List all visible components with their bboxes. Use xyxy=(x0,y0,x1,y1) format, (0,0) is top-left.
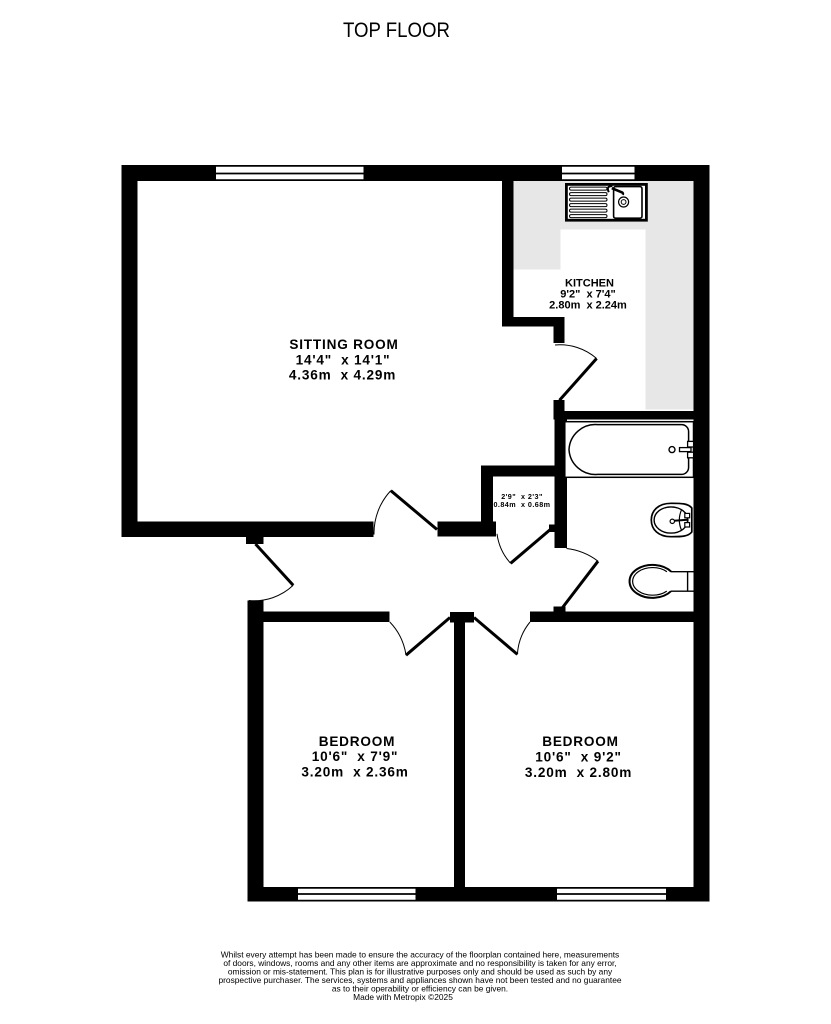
svg-text:3.20m x 2.80m: 3.20m x 2.80m xyxy=(525,765,632,780)
svg-text:0.84m x 0.68m: 0.84m x 0.68m xyxy=(493,500,550,509)
svg-text:SITTING ROOM: SITTING ROOM xyxy=(289,337,398,352)
svg-text:2.80m x 2.24m: 2.80m x 2.24m xyxy=(549,299,627,311)
svg-text:10'6" x 9'2": 10'6" x 9'2" xyxy=(535,749,621,764)
svg-text:14'4" x 14'1": 14'4" x 14'1" xyxy=(296,352,391,367)
svg-text:BEDROOM: BEDROOM xyxy=(319,734,396,749)
svg-text:Made with Metropix ©2025: Made with Metropix ©2025 xyxy=(353,992,453,1002)
svg-text:3.20m x 2.36m: 3.20m x 2.36m xyxy=(301,764,408,779)
svg-text:10'6" x 7'9": 10'6" x 7'9" xyxy=(312,749,398,764)
svg-text:TOP FLOOR: TOP FLOOR xyxy=(343,18,450,42)
svg-text:4.36m x 4.29m: 4.36m x 4.29m xyxy=(289,368,396,383)
svg-text:BEDROOM: BEDROOM xyxy=(542,734,619,749)
